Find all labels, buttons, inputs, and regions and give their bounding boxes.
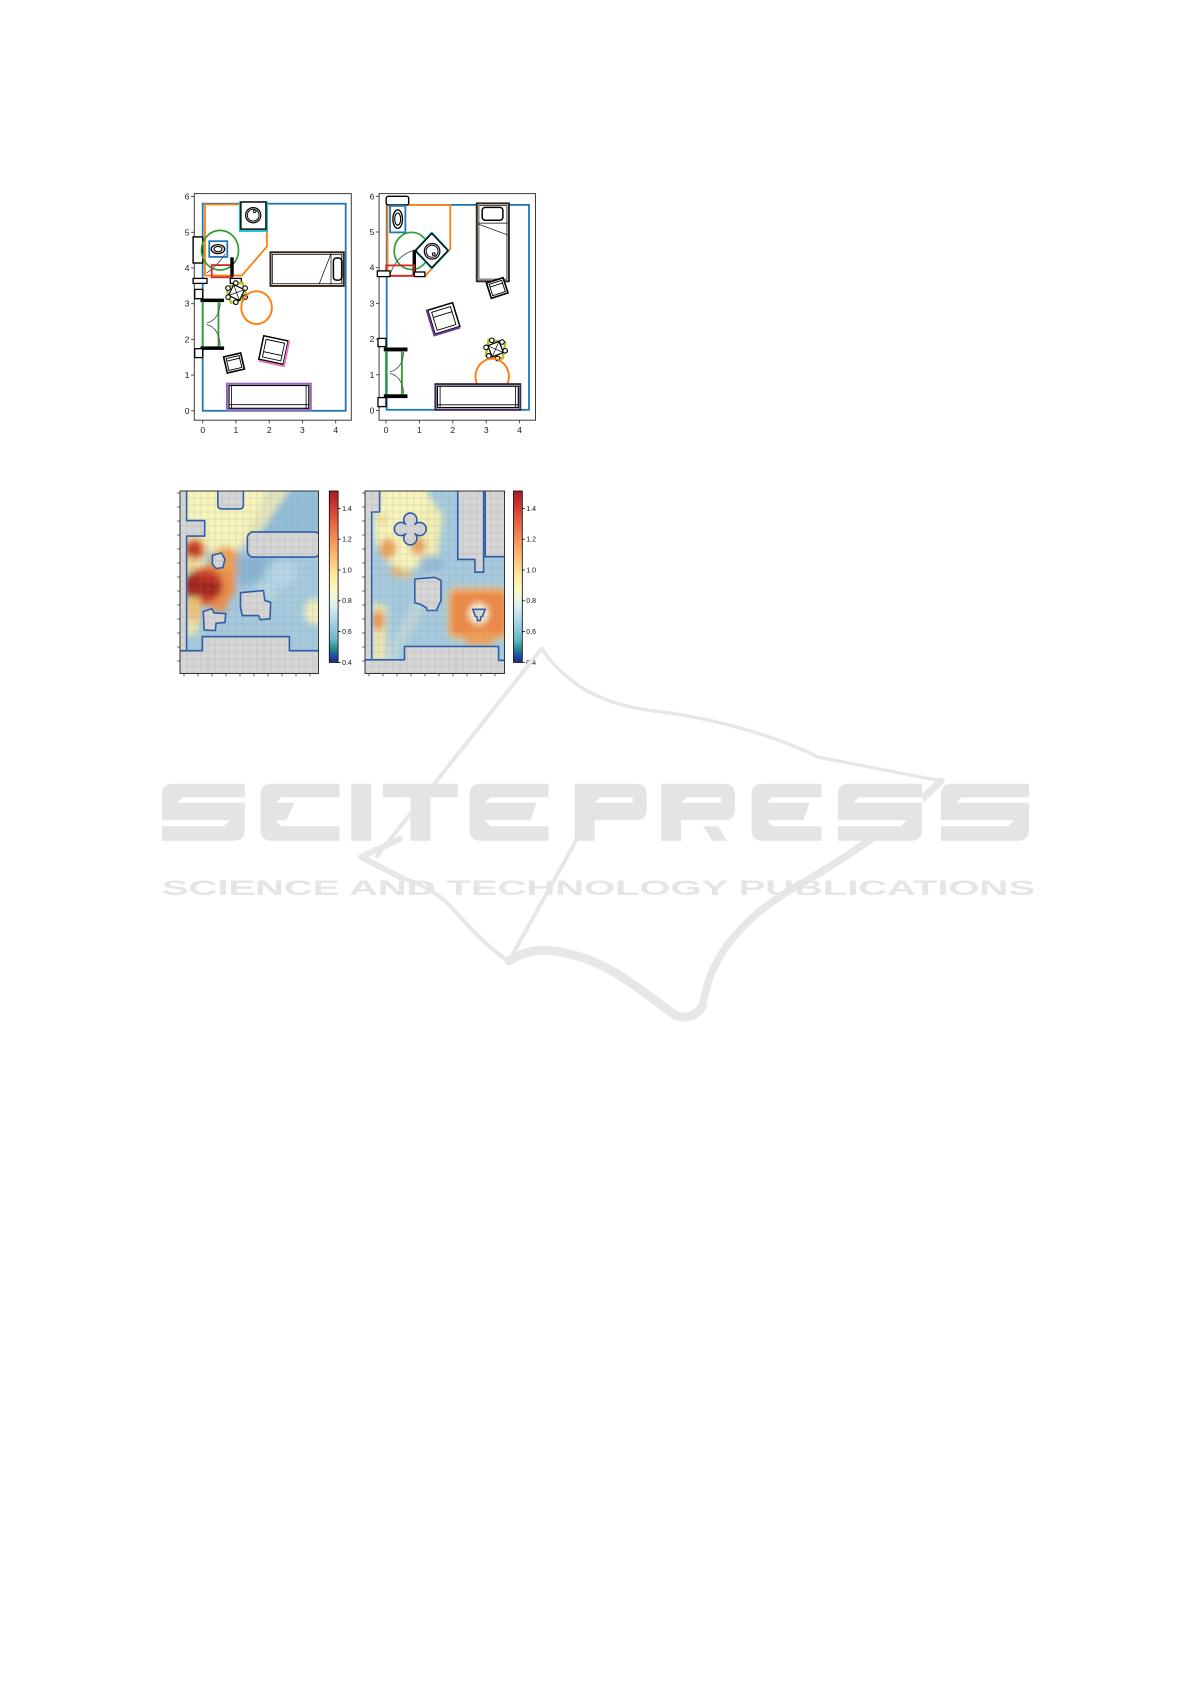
svg-text:1.4: 1.4 (342, 506, 352, 513)
svg-text:SCIENCE AND TECHNOLOGY PUBLICA: SCIENCE AND TECHNOLOGY PUBLICATIONS (162, 876, 1035, 900)
svg-text:1: 1 (185, 370, 190, 380)
svg-text:2: 2 (267, 425, 272, 435)
svg-text:1.2: 1.2 (526, 537, 536, 544)
svg-text:4: 4 (185, 263, 190, 273)
svg-text:1.0: 1.0 (526, 567, 536, 574)
svg-text:0.6: 0.6 (342, 629, 352, 636)
svg-text:4: 4 (370, 263, 375, 273)
svg-text:2: 2 (370, 334, 375, 344)
svg-text:1.4: 1.4 (526, 506, 536, 513)
svg-text:6: 6 (370, 191, 375, 201)
svg-text:0: 0 (200, 425, 205, 435)
svg-text:1.2: 1.2 (342, 537, 352, 544)
svg-text:2: 2 (185, 334, 190, 344)
svg-text:1.0: 1.0 (342, 567, 352, 574)
svg-text:0: 0 (370, 406, 375, 416)
svg-text:5: 5 (370, 227, 375, 237)
svg-text:0.4: 0.4 (342, 660, 352, 667)
svg-text:1: 1 (234, 425, 239, 435)
svg-text:0.6: 0.6 (526, 629, 536, 636)
svg-text:4: 4 (333, 425, 338, 435)
svg-text:0.8: 0.8 (526, 598, 536, 605)
svg-text:6: 6 (185, 192, 190, 202)
svg-text:0: 0 (185, 406, 190, 416)
svg-text:1: 1 (417, 425, 422, 435)
svg-text:0: 0 (384, 425, 389, 435)
svg-text:3: 3 (300, 425, 305, 435)
svg-text:2: 2 (450, 425, 455, 435)
svg-text:4: 4 (517, 425, 522, 435)
svg-text:5: 5 (185, 227, 190, 237)
svg-text:0.8: 0.8 (342, 598, 352, 605)
svg-text:1: 1 (370, 370, 375, 380)
svg-text:3: 3 (370, 298, 375, 308)
svg-text:3: 3 (484, 425, 489, 435)
svg-text:3: 3 (185, 299, 190, 309)
